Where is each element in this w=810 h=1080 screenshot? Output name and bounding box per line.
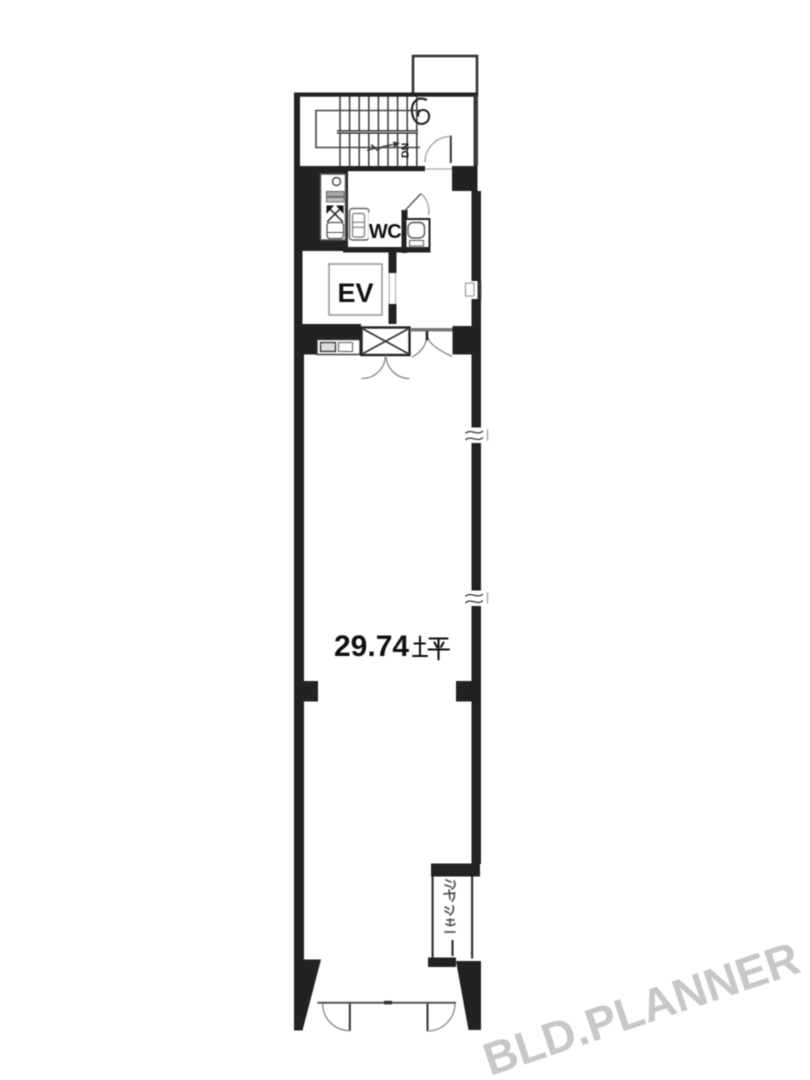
svg-text:29.74: 29.74 [334,630,409,663]
svg-text:WC: WC [369,221,401,243]
svg-text:DN: DN [400,143,412,158]
svg-text:EV: EV [337,278,373,308]
